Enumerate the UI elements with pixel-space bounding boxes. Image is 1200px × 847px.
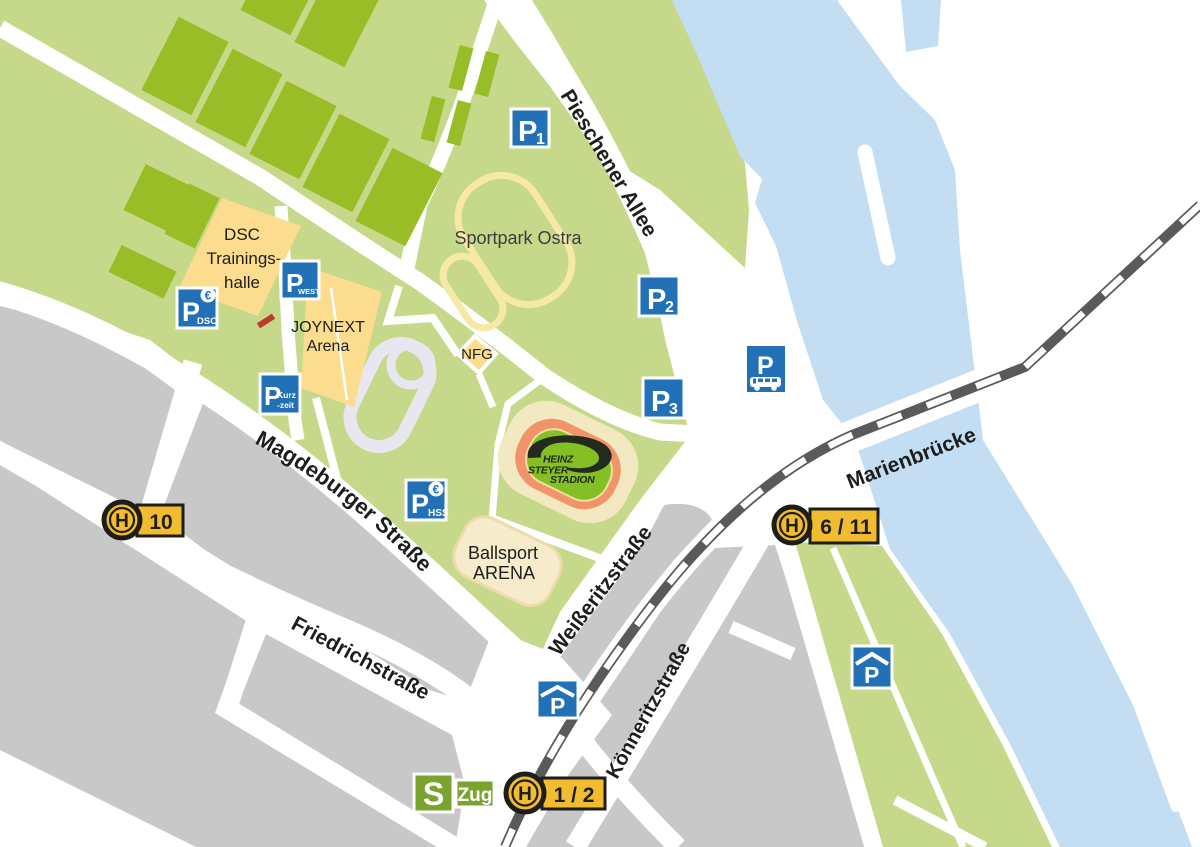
svg-text:€: € <box>433 483 440 497</box>
svg-text:P: P <box>550 693 565 719</box>
svg-text:-zeit: -zeit <box>277 400 294 410</box>
svg-text:Sportpark Ostra: Sportpark Ostra <box>454 228 582 248</box>
svg-text:€: € <box>205 289 212 303</box>
svg-text:P: P <box>518 116 537 148</box>
svg-text:P: P <box>647 284 666 316</box>
svg-text:NFG: NFG <box>461 346 493 363</box>
svg-text:JOYNEXT: JOYNEXT <box>291 319 365 336</box>
svg-text:2: 2 <box>665 299 674 316</box>
svg-text:halle: halle <box>224 273 260 292</box>
svg-text:Arena: Arena <box>307 338 350 355</box>
svg-text:3: 3 <box>669 401 678 418</box>
svg-text:S: S <box>423 776 444 812</box>
svg-text:HSS: HSS <box>428 508 449 519</box>
svg-text:P: P <box>864 662 879 688</box>
svg-text:STADION: STADION <box>550 474 595 486</box>
svg-text:H: H <box>785 516 799 537</box>
svg-text:P: P <box>651 386 670 418</box>
svg-text:DSC: DSC <box>197 316 217 327</box>
svg-text:H: H <box>115 511 129 532</box>
svg-text:1 / 2: 1 / 2 <box>554 784 595 807</box>
svg-text:P: P <box>757 352 774 380</box>
svg-text:6 / 11: 6 / 11 <box>820 516 872 539</box>
svg-text:Ballsport: Ballsport <box>468 543 538 563</box>
svg-text:Kurz: Kurz <box>277 390 296 400</box>
svg-text:H: H <box>518 784 532 805</box>
svg-text:ARENA: ARENA <box>473 563 535 583</box>
svg-text:Zug: Zug <box>458 785 493 806</box>
svg-text:1: 1 <box>536 131 545 148</box>
svg-text:DSC: DSC <box>224 225 260 244</box>
svg-text:10: 10 <box>149 511 172 534</box>
svg-text:P: P <box>411 489 429 519</box>
svg-text:Trainings-: Trainings- <box>207 249 282 268</box>
svg-text:WEST: WEST <box>298 287 320 296</box>
